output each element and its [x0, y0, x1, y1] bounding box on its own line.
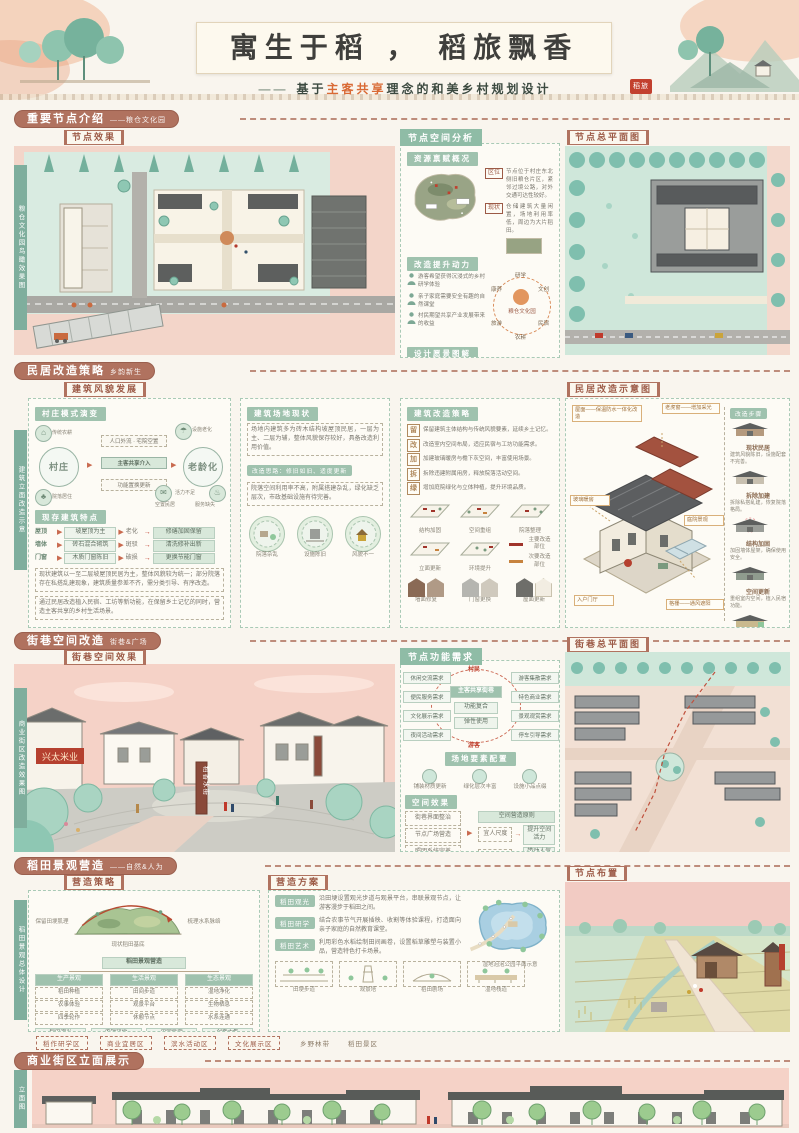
note-location: 区位 节点位于村庄东北侧旧粮仓片区，紧邻过境公路，对外交通可达性较好。	[485, 168, 553, 201]
strategy-badge: 加	[407, 453, 420, 466]
strategy-row: 留保留建筑主体结构与传统风貌要素，延续乡土记忆。	[407, 424, 553, 437]
satellite-label: 服务缺失	[195, 501, 215, 508]
need-item: 便民服务需求	[403, 691, 451, 703]
axon-caption: 立面更新	[407, 566, 453, 573]
strategy-label: 营造策略	[64, 875, 124, 890]
axon-caption: 空间重组	[457, 528, 503, 535]
power-subheader: 改造提升动力	[407, 257, 478, 271]
site-status-subheader: 建筑场地现状	[247, 407, 318, 421]
leaf-item: 田园民宿	[146, 1028, 197, 1032]
section1-subtitle: ——粮仓文化园	[110, 117, 166, 124]
vignette-courtyard	[249, 516, 285, 552]
renovation-strategy-panel: 建筑改造策略 留保留建筑主体结构与传统风貌要素，延续乡土记忆。 改改造室内空间布…	[400, 398, 560, 628]
street-analysis-panel: 村民 游客 主客共享街巷 功能复合 弹性使用 休闲交流需求 便民服务需求 文化展…	[400, 660, 560, 852]
paragraph-text: 现状建筑以一至二层坡屋顶民居为主，整体风貌较为统一；部分院落存在私搭乱建现象，建…	[39, 571, 220, 589]
section5-vertical-tab: 立面图	[14, 1070, 27, 1128]
club-icon: ♣	[35, 489, 52, 506]
renovation-steps: 改造步骤 现状民居建筑风貌陈旧，设施配套不完善。 拆除加建拆除私搭乱建，恢复院落…	[730, 403, 786, 628]
shop-sign-text: 兴太米业	[42, 751, 78, 762]
flow-left-item: 节点广场营造	[405, 828, 461, 843]
effect-flow-area: 街巷界面整治 节点广场营造 照明系统完善 标识系统设计 ▶ 空间营造原则 宜人尺…	[405, 811, 555, 852]
red-arrow-icon: →	[144, 541, 151, 551]
section1-header: 重要节点介绍——粮仓文化园	[14, 110, 179, 128]
center-item: 主客共享街巷	[450, 686, 502, 698]
street-elevation	[32, 1068, 789, 1128]
radial-top-label: 村民	[468, 664, 480, 673]
note-status-tag: 现状	[485, 203, 503, 214]
satellite-label: 院落居住	[52, 493, 72, 500]
paddy-strategy-panel: 保留田埂肌理 现状稻田基底 梳理水系脉络 稻田景观营造 生产景观 稻田种植	[28, 890, 260, 1032]
status-vignettes: 院落杂乱 设施陈旧 风貌不一	[247, 516, 383, 559]
mail-icon: ✉	[155, 485, 172, 502]
step-caption: 空间更新	[730, 587, 786, 596]
note-status-text: 仓储建筑大量闲置，场地利用率低，周边为大片稻田。	[506, 203, 553, 236]
plan-tag: 稻田艺术	[275, 939, 315, 951]
facade-caption: 墙面修复	[407, 597, 445, 604]
section3-header: 街巷空间改造街巷&广场	[14, 632, 161, 650]
step-caption: 现状民居	[730, 443, 786, 452]
street-masterplan-label: 街巷总平面图	[567, 637, 649, 652]
branch-kid: 农事体验	[35, 1000, 103, 1012]
radial-bottom-label: 游客	[468, 740, 480, 749]
radial-center-icon	[513, 289, 529, 305]
strategy-subheader: 建筑改造策略	[407, 407, 478, 421]
satellite-label: 传统农耕	[52, 429, 72, 436]
node-analysis-title: 节点空间分析	[400, 129, 482, 146]
flow-part: 墙体	[35, 541, 55, 550]
person-icon	[407, 273, 416, 286]
branch-name: 生活景观	[110, 974, 178, 986]
paragraph-text: 场地内建筑多为砖木结构坡屋顶民居，一层为主、二层为辅，整体风貌保存较好，具备改造…	[251, 426, 379, 453]
site-photo-thumb	[506, 238, 542, 254]
note-location-tag: 区位	[485, 168, 503, 179]
section4-subtitle: ——自然&人为	[110, 864, 164, 871]
zone-tag: 滨水活动区	[164, 1036, 216, 1050]
step-text: 加固墙体屋架，确保使用安全。	[730, 548, 786, 562]
element-circle	[522, 769, 537, 784]
zone-tag: 文化展示区	[228, 1036, 280, 1050]
street-masterplan	[565, 652, 790, 852]
radial-item: 民宿	[538, 319, 549, 327]
monument-sign-text: 稻香水街	[202, 766, 211, 796]
tree-connector	[69, 971, 219, 972]
street-effect-label: 街巷空间效果	[64, 650, 146, 665]
zone-tag: 商业宜居区	[100, 1036, 152, 1050]
subtitle-highlight: 主客共享	[326, 82, 386, 96]
radial-center-label: 粮仓文化园	[499, 307, 545, 315]
facade-caption: 门窗更换	[461, 597, 499, 604]
branch-kid: 生物栖息	[185, 1000, 253, 1012]
axon-caption: 环境提升	[457, 566, 503, 573]
house-icon: ⌂	[35, 425, 52, 442]
branch-kid: 稻田种植	[35, 987, 103, 999]
person-icon	[407, 293, 416, 306]
element-caption: 绿化层次丰富	[463, 784, 496, 791]
subtitle-dash: ——	[258, 82, 288, 96]
note-location-text: 节点位于村庄东北侧旧粮仓片区，紧邻过境公路，对外交通可达性较好。	[506, 168, 553, 201]
legend-label: 次要改造部位	[526, 554, 553, 568]
callout-sunroom: 玻璃暖房	[570, 495, 610, 506]
subtitle-pre: 基于	[296, 82, 326, 96]
flow-b: 提升空间活力	[523, 825, 555, 845]
section3-dashline	[250, 640, 790, 642]
plan-tag: 稻田研学	[275, 917, 315, 929]
arrow-icon: ▶	[118, 554, 123, 564]
renovation-diagram-label: 民居改造示意图	[567, 382, 660, 397]
plain-tag: 稻田景区	[348, 1038, 378, 1048]
paddy-rendering	[565, 882, 790, 1032]
arrow-icon: →	[514, 851, 521, 852]
street-elevation-illustration	[32, 1068, 789, 1128]
plain-tag: 乡野林带	[300, 1038, 330, 1048]
facade-after	[427, 578, 444, 597]
axon-thumbs-row2: 立面更新 环境提升 主要改造部位 次要改造部位	[407, 537, 553, 573]
section5-dashline	[205, 1060, 790, 1062]
branch-kid: 水系连通	[185, 1013, 253, 1025]
aging-circle: 老龄化	[183, 447, 223, 487]
needs-radial-diagram: 村民 游客 主客共享街巷 功能复合 弹性使用 休闲交流需求 便民服务需求 文化展…	[401, 664, 559, 748]
flow-a: 复合业态	[478, 849, 512, 852]
arrow-icon: ▶	[467, 829, 472, 839]
need-item: 夜间活动需求	[403, 729, 451, 741]
element-row: 铺装材质更新 绿化层次丰富 设施小品点缀	[405, 769, 555, 791]
flow-head: 空间营造原则	[478, 811, 555, 823]
callout-grille: 格栅——通风遮阳	[666, 599, 724, 610]
arrow-icon: ▶	[57, 541, 62, 551]
section2-title: 民居改造策略	[27, 365, 105, 377]
step-text: 建筑风貌陈旧，设施配套不完善。	[730, 452, 786, 466]
branch-kid: 田间步道	[110, 987, 178, 999]
vignette-caption: 院落杂乱	[247, 552, 287, 559]
legend-label: 主要改造部位	[526, 537, 553, 551]
panel-divider	[724, 407, 725, 621]
street-scene-illustration: 兴太米业 稻香水街	[14, 664, 395, 852]
section3-vertical-tab: 商业街区改造效果图	[14, 688, 27, 828]
section3-subtitle: 街巷&广场	[110, 639, 148, 646]
flow-part: 破损	[126, 554, 142, 563]
village-evolution-diagram: ⌂ 传统农耕 村庄 ♣ 院落居住 人口外流 · 宅院空置 主客共享介入 功能置换…	[35, 423, 224, 507]
tree-root: 稻田景观营造	[102, 957, 186, 969]
hill-left-label: 保留田埂肌理	[35, 919, 69, 926]
paddy-hill-illustration	[69, 895, 187, 937]
callout-entry: 入户门厅	[574, 595, 614, 606]
flow-part: 坡屋顶为主	[64, 527, 116, 539]
arrow-icon: ▶	[118, 541, 123, 551]
person-icon	[407, 312, 416, 325]
red-arrow-icon: →	[144, 554, 151, 564]
spring-icon: ♨	[209, 485, 226, 502]
facade-pairs-row: 墙面修复 门窗更换 屋面更新	[407, 578, 553, 604]
section4-header: 稻田景观营造——自然&人为	[14, 857, 177, 875]
strategy-text: 改造室内空间布局，适应民宿与工坊功能需求。	[423, 441, 540, 449]
site-map-illustration	[407, 168, 481, 224]
step-text: 拆除私搭乱建，恢复院落格局。	[730, 500, 786, 514]
summary-paragraph: 通过民居改造植入民宿、工坊等新功能，在保留乡土记忆的同时，营造主客共享的乡村生活…	[35, 596, 224, 620]
house-axonometric-illustration	[570, 411, 720, 616]
motive-text: 村民期望共享产业发展带来的收益	[418, 312, 485, 329]
center-item: 弹性使用	[454, 717, 498, 729]
radial-item: 农耕	[515, 333, 526, 341]
trait-flow-row: 屋顶 ▶ 坡屋顶为主 ▶ 老化 → 修缮加固保留	[35, 527, 224, 539]
flow-part: 清洗修补出新	[153, 540, 215, 552]
strategy-badge: 留	[407, 424, 420, 437]
strategy-text: 增加庭院绿化与立体种植，提升环境品质。	[423, 484, 529, 492]
plan-tag: 稻田观光	[275, 895, 315, 907]
need-item: 游客集散需求	[511, 672, 559, 684]
center-item: 功能复合	[454, 702, 498, 714]
subtitle-post: 理念的和美乡村规划设计	[387, 82, 552, 96]
summary-paragraph: 现状建筑以一至二层坡屋顶民居为主，整体风貌较为统一；部分院落存在私搭乱建现象，建…	[35, 568, 224, 592]
branch-kid: 四季轮作	[35, 1013, 103, 1025]
need-item: 特色商业需求	[511, 691, 559, 703]
status-paragraph: 场地内建筑多为砖木结构坡屋顶民居，一层为主、二层为辅，整体风貌保存较好，具备改造…	[247, 423, 383, 456]
satellite-label: 活力不足	[175, 489, 195, 496]
paddy-plan-panel: 湿地泡泡公园平面示意 稻田观光沿田埂设置观光步道与观景平台，串联景观节点，让游客…	[268, 890, 560, 1032]
steps-header: 改造步骤	[730, 408, 767, 419]
need-item: 停车引导需求	[511, 729, 559, 741]
vignette-caption: 风貌不一	[343, 552, 383, 559]
wetland-pond-illustration	[466, 895, 554, 957]
strategy-row: 加加建玻璃暖房与檐下灰空间，丰富使用场景。	[407, 453, 553, 466]
renovation-diagram-panel: 屋面——保温防水一体化改造 老虎窗——增加采光 玻璃暖房 庭院景观 入户门厅 格…	[565, 398, 790, 628]
flow-part: 木质门窗陈旧	[64, 553, 116, 565]
facade-caption: 屋面更新	[515, 597, 553, 604]
vignette-style	[345, 516, 381, 552]
section1-vertical-tab: 粮仓文化园鸟瞰效果图	[14, 165, 27, 330]
village-evolution-panel: 村庄模式演变 ⌂ 传统农耕 村庄 ♣ 院落居住 人口外流 · 宅院空置 主客共享…	[28, 398, 231, 628]
element-caption: 铺装材质更新	[413, 784, 446, 791]
axon-caption: 结构加固	[407, 528, 453, 535]
bridge-mid: 主客共享介入	[101, 457, 167, 469]
village-circle: 村庄	[39, 447, 79, 487]
step-text: 重组室内空间，植入民宿功能。	[730, 596, 786, 610]
satellite-label: 设施老化	[192, 426, 212, 433]
callout-roof: 屋面——保温防水一体化改造	[572, 405, 642, 422]
flow-part: 门窗	[35, 554, 55, 563]
facade-after	[481, 578, 498, 597]
space-effect-subheader: 空间效果	[405, 795, 457, 809]
element-caption: 设施小品点缀	[513, 784, 546, 791]
trait-flow-row: 墙体 ▶ 砖石混合砌筑 ▶ 斑驳 → 清洗修补出新	[35, 540, 224, 552]
flow-left-item: 街巷界面整治	[405, 811, 461, 826]
arrow-icon: ▶	[57, 554, 62, 564]
facade-before	[516, 578, 533, 597]
evolution-subheader: 村庄模式演变	[35, 407, 106, 421]
radial-item: 文创	[538, 285, 549, 293]
leaf-item: 稻田观光	[35, 1028, 86, 1032]
strategy-text: 拆除违建附属用房，释放院落活动空间。	[423, 470, 524, 478]
radial-item: 旅游	[491, 319, 502, 327]
renovation-legend: 主要改造部位 次要改造部位	[509, 537, 553, 569]
paragraph-text: 通过民居改造植入民宿、工坊等新功能，在保留乡土记忆的同时，营造主客共享的乡村生活…	[39, 599, 220, 617]
section1-title: 重要节点介绍	[27, 113, 105, 125]
demand-radial-diagram: 粮仓文化园 研学 文创 民宿 农耕 旅游 康养	[491, 273, 553, 343]
flow-b: 带动人气集聚	[523, 847, 555, 852]
branch-name: 生产景观	[35, 974, 103, 986]
callout-courtyard: 庭院景观	[684, 515, 724, 526]
section4-vertical-tab: 稻田景观总体设计	[14, 900, 27, 1020]
flow-left-item: 照明系统完善	[405, 845, 461, 852]
vision-subheader: 设计愿景图解	[407, 347, 478, 359]
tree-branches: 生产景观 稻田种植 农事体验 四季轮作 生活景观 田间步道 观景平台 休憩节点 …	[35, 974, 253, 1025]
paragraph-text: 院落空间利用率不高，附属搭建杂乱，绿化缺乏层次，市政基础设施有待完善。	[251, 485, 379, 503]
pond-figure: 湿地泡泡公园平面示意	[465, 895, 555, 969]
street-masterplan-illustration	[565, 652, 790, 852]
strategy-row: 改改造室内空间布局，适应民宿与工坊功能需求。	[407, 439, 553, 452]
arrow-icon: ▶	[87, 461, 92, 471]
banner: 寓生于稻 ， 稻旅飘香 ——基于主客共享理念的和美乡村规划设计 稻旅	[0, 0, 799, 102]
step-item: 空间更新重组室内空间，植入民宿功能。	[730, 565, 786, 610]
umbrella-icon: ☂	[175, 423, 192, 440]
section2-dashline	[250, 370, 790, 372]
flow-a: 宜人尺度	[478, 827, 512, 842]
node-aerial-illustration	[14, 146, 395, 355]
step-caption: 拆除加建	[730, 491, 786, 500]
node-analysis-panel: 资源禀赋概况 区位 节点位于村庄东北侧旧粮仓片区，紧邻过境公路，对外交通可达性较…	[400, 143, 560, 358]
poster-board: 寓生于稻 ， 稻旅飘香 ——基于主客共享理念的和美乡村规划设计 稻旅 重要节点介…	[0, 0, 799, 1133]
branch-kid: 休憩节点	[110, 1013, 178, 1025]
red-arrow-icon: →	[144, 528, 151, 538]
bridge-top: 人口外流 · 宅院空置	[101, 435, 167, 447]
satellite-label: 空置民居	[155, 501, 175, 508]
facade-after	[535, 578, 552, 597]
node-aerial-rendering	[14, 146, 395, 355]
axon-caption: 院落整理	[507, 528, 553, 535]
section2-vertical-tab: 建筑立面改造示意	[14, 430, 27, 570]
step-item: 结构加固加固墙体屋架，确保使用安全。	[730, 517, 786, 562]
branch-kid: 观景平台	[110, 1000, 178, 1012]
legend-swatch-primary	[509, 543, 523, 546]
motive-text: 亲子家庭需要安全有趣的自然课堂	[418, 293, 485, 310]
facade-before	[462, 578, 479, 597]
masterplan-label: 节点总平面图	[567, 130, 649, 145]
strategy-badge: 改	[407, 439, 420, 452]
section3-title: 街巷空间改造	[27, 635, 105, 647]
leaf-item: 创意市集	[202, 1028, 253, 1032]
strategy-text: 加建玻璃暖房与檐下灰空间，丰富使用场景。	[423, 455, 535, 463]
step-item: 品质提升完善设施配套，提升庭院环境。	[730, 613, 786, 628]
section5-header: 商业街区立面展示	[14, 1052, 144, 1070]
section1-dashline	[240, 118, 790, 120]
section2-header: 民居改造策略乡韵新生	[14, 362, 155, 380]
step-item: 拆除加建拆除私搭乱建，恢复院落格局。	[730, 469, 786, 514]
strategy-badge: 拆	[407, 468, 420, 481]
note-status: 现状 仓储建筑大量闲置，场地利用率低，周边为大片稻田。	[485, 203, 553, 254]
flow-part: 砖石混合砌筑	[64, 540, 116, 552]
section1-effect-label: 节点效果	[64, 130, 124, 145]
section4-title: 稻田景观营造	[27, 860, 105, 872]
leaf-row: 稻田观光 农耕研学 田园民宿 创意市集	[35, 1028, 253, 1032]
flow-part: 屋顶	[35, 528, 55, 537]
section4-dashline	[265, 865, 790, 867]
site-status-panel: 建筑场地现状 场地内建筑多为砖木结构坡屋顶民居，一层为主、二层为辅，整体风貌保存…	[240, 398, 390, 628]
vignette-facilities	[297, 516, 333, 552]
motive-list: 游客希望获得沉浸式的乡村研学体验 亲子家庭需要安全有趣的自然课堂 村民期望共享产…	[407, 273, 485, 329]
layout-label: 节点布置	[567, 866, 627, 881]
hill-right-label: 梳理水系脉络	[187, 919, 221, 926]
elements-subheader: 场地要素配置	[445, 752, 516, 766]
legend-swatch-secondary	[509, 560, 523, 563]
street-rendering: 兴太米业 稻香水街	[14, 664, 395, 852]
arrow-icon: ▶	[118, 528, 123, 538]
plan-text: 沿田埂设置观光步道与观景平台，串联景观节点，让游客漫步于稻田之间。	[319, 895, 461, 913]
plan-label: 营造方案	[268, 875, 328, 890]
node-masterplan	[565, 146, 790, 355]
motive-text: 游客希望获得沉浸式的乡村研学体验	[418, 273, 485, 290]
strategy-text: 保留建筑主体结构与传统风貌要素，延续乡土记忆。	[423, 426, 552, 434]
vignette-caption: 设施陈旧	[295, 552, 335, 559]
section5-title: 商业街区立面展示	[27, 1055, 131, 1067]
branch-kid: 湿地净化	[185, 987, 253, 999]
building-traits-subheader: 现存建筑特点	[35, 510, 106, 524]
arrow-icon: ▶	[171, 461, 176, 471]
poster-title: 寓生于稻 ， 稻旅飘香	[197, 23, 611, 73]
step-item: 现状民居建筑风貌陈旧，设施配套不完善。	[730, 421, 786, 466]
need-item: 文化展示需求	[403, 710, 451, 722]
facade-before	[408, 578, 425, 597]
branch-name: 生态景观	[185, 974, 253, 986]
pond-caption: 湿地泡泡公园平面示意	[465, 962, 555, 969]
seal-stamp: 稻旅	[630, 79, 652, 94]
flow-part: 修缮加固保留	[153, 527, 215, 539]
trait-flow-row: 门窗 ▶ 木质门窗陈旧 ▶ 破损 → 更换节能门窗	[35, 553, 224, 565]
section2-subtitle: 乡韵新生	[110, 369, 142, 376]
status-paragraph: 院落空间利用率不高，附属搭建杂乱，绿化缺乏层次，市政基础设施有待完善。	[247, 482, 383, 506]
arrow-icon: ▶	[57, 528, 62, 538]
element-circle	[422, 769, 437, 784]
plan-rows: 稻田观光沿田埂设置观光步道与观景平台，串联景观节点，让游客漫步于稻田之间。 稻田…	[275, 895, 461, 957]
hill-caption: 现状稻田基底	[69, 942, 187, 949]
strategy-row: 拆拆除违建附属用房，释放院落活动空间。	[407, 468, 553, 481]
facade-development-label: 建筑风貌发展	[64, 382, 146, 397]
renovation-idea-tag: 改造思路：修旧如旧、适度更新	[247, 465, 352, 476]
zone-tag: 稻作研学区	[36, 1036, 88, 1050]
strategy-badge: 绿	[407, 482, 420, 495]
plan-text: 结合农事节气开展插秧、收割等体验课程，打造面向亲子家庭的自然教育课堂。	[319, 917, 461, 935]
leaf-item: 农耕研学	[91, 1028, 142, 1032]
need-item: 休闲交流需求	[403, 672, 451, 684]
arrow-icon: →	[514, 830, 521, 840]
axon-thumbs-row1: 结构加固 空间重组 院落整理	[407, 499, 553, 535]
street-needs-title: 节点功能需求	[400, 648, 482, 665]
step-caption: 结构加固	[730, 539, 786, 548]
paddy-view-illustration	[565, 882, 790, 1032]
flow-part: 更换节能门窗	[153, 553, 215, 565]
radial-item: 研学	[515, 271, 526, 279]
flow-part: 老化	[126, 528, 142, 537]
poster-subtitle: ——基于主客共享理念的和美乡村规划设计	[200, 80, 610, 97]
title-plate: 寓生于稻 ， 稻旅飘香	[196, 22, 612, 74]
flow-part: 斑驳	[126, 541, 142, 550]
radial-item: 康养	[491, 285, 502, 293]
need-item: 景观观赏需求	[511, 710, 559, 722]
strategy-row: 绿增加庭院绿化与立体种植，提升环境品质。	[407, 482, 553, 495]
callout-dormer: 老虎窗——增加采光	[662, 403, 720, 414]
node-masterplan-illustration	[565, 146, 790, 355]
element-circle	[472, 769, 487, 784]
resource-subheader: 资源禀赋概况	[407, 152, 478, 166]
plan-text: 利用彩色水稻绘制田间画卷，设置稻草雕塑与装置小品，营造特色打卡场景。	[319, 939, 461, 957]
